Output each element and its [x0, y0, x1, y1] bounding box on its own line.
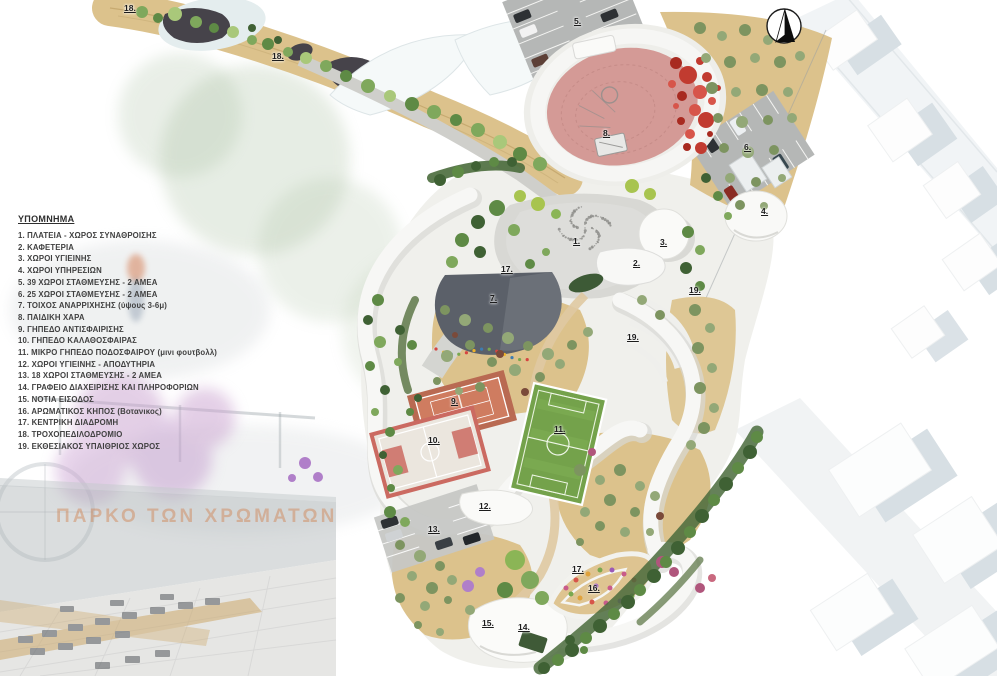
- plan-marker: 9.: [451, 397, 458, 406]
- legend-item: 4. ΧΩΡΟΙ ΥΠΗΡΕΣΙΩΝ: [18, 265, 248, 277]
- plan-marker: 17.: [572, 565, 584, 574]
- plan-marker: 8.: [603, 129, 610, 138]
- site-plan-canvas: ΥΠΟΜΝΗΜΑ 1. ΠΛΑΤΕΙΑ - ΧΩΡΟΣ ΣΥΝΑΘΡΟΙΣΗΣ2…: [0, 0, 997, 676]
- legend-item: 1. ΠΛΑΤΕΙΑ - ΧΩΡΟΣ ΣΥΝΑΘΡΟΙΣΗΣ: [18, 230, 248, 242]
- legend-item: 16. ΑΡΩΜΑΤΙΚΟΣ ΚΗΠΟΣ (Βοτανικος): [18, 406, 248, 418]
- plan-marker: 12.: [479, 502, 491, 511]
- legend-item: 9. ΓΗΠΕΔΟ ΑΝΤΙΣΦΑΙΡΙΣΗΣ: [18, 324, 248, 336]
- legend-item: 18. ΤΡΟΧΟΠΕΔΙΛΟΔΡΟΜΙΟ: [18, 429, 248, 441]
- legend-items: 1. ΠΛΑΤΕΙΑ - ΧΩΡΟΣ ΣΥΝΑΘΡΟΙΣΗΣ2. ΚΑΦΕΤΕΡ…: [18, 230, 248, 452]
- plan-marker: 6.: [744, 143, 751, 152]
- legend-item: 6. 25 ΧΩΡΟΙ ΣΤΑΘΜΕΥΣΗΣ - 2 ΑΜΕΑ: [18, 289, 248, 301]
- legend-item: 13. 18 ΧΩΡΟΙ ΣΤΑΘΜΕΥΣΗΣ - 2 ΑΜΕΑ: [18, 370, 248, 382]
- plan-marker: 3.: [660, 238, 667, 247]
- plan-marker: 11.: [554, 425, 565, 434]
- legend-item: 5. 39 ΧΩΡΟΙ ΣΤΑΘΜΕΥΣΗΣ - 2 ΑΜΕΑ: [18, 277, 248, 289]
- park-name-watermark: ΠΑΡΚΟ ΤΩΝ ΧΡΩΜΑΤΩΝ: [56, 506, 337, 528]
- legend-panel: ΥΠΟΜΝΗΜΑ 1. ΠΛΑΤΕΙΑ - ΧΩΡΟΣ ΣΥΝΑΘΡΟΙΣΗΣ2…: [18, 214, 248, 452]
- legend-item: 8. ΠΑΙΔΙΚΗ ΧΑΡΑ: [18, 312, 248, 324]
- plan-marker: 2.: [633, 259, 640, 268]
- legend-item: 3. ΧΩΡΟΙ ΥΓΙΕΙΝΗΣ: [18, 253, 248, 265]
- plan-marker: 18.: [272, 52, 284, 61]
- legend-item: 2. ΚΑΦΕΤΕΡΙΑ: [18, 242, 248, 254]
- plan-marker: 1.: [573, 237, 580, 246]
- plan-marker: 17.: [501, 265, 513, 274]
- plan-marker: 16.: [588, 584, 600, 593]
- plan-marker: 14.: [518, 623, 530, 632]
- legend-title: ΥΠΟΜΝΗΜΑ: [18, 214, 248, 224]
- north-arrow-icon: [762, 3, 806, 49]
- legend-item: 15. ΝΟΤΙΑ ΕΙΣΟΔΟΣ: [18, 394, 248, 406]
- legend-item: 12. ΧΩΡΟΙ ΥΓΙΕΙΝΗΣ - ΑΠΟΔΥΤΗΡΙΑ: [18, 359, 248, 371]
- plan-marker: 10.: [428, 436, 440, 445]
- plan-marker: 19.: [627, 333, 639, 342]
- plan-marker: 13.: [428, 525, 440, 534]
- plan-marker: 15.: [482, 619, 494, 628]
- plan-marker: 18.: [124, 4, 136, 13]
- legend-item: 14. ΓΡΑΦΕΙΟ ΔΙΑΧΕΙΡΙΣΗΣ ΚΑΙ ΠΛΗΡΟΦΟΡΙΩΝ: [18, 382, 248, 394]
- plan-marker: 7.: [490, 294, 497, 303]
- legend-item: 10. ΓΗΠΕΔΟ ΚΑΛΑΘΟΣΦΑΙΡΑΣ: [18, 335, 248, 347]
- legend-item: 17. ΚΕΝΤΡΙΚΗ ΔΙΑΔΡΟΜΗ: [18, 417, 248, 429]
- legend-item: 19. ΕΚΘΕΣΙΑΚΟΣ ΥΠΑΙΘΡΙΟΣ ΧΩΡΟΣ: [18, 441, 248, 453]
- plan-marker: 5.: [574, 17, 581, 26]
- plan-marker: 19.: [689, 286, 701, 295]
- plan-marker: 4.: [761, 207, 768, 216]
- legend-item: 7. ΤΟΙΧΟΣ ΑΝΑΡΡΙΧΗΣΗΣ (ύψους 3-6μ): [18, 300, 248, 312]
- legend-item: 11. ΜΙΚΡΟ ΓΗΠΕΔΟ ΠΟΔΟΣΦΑΙΡΟΥ (μινι φουτβ…: [18, 347, 248, 359]
